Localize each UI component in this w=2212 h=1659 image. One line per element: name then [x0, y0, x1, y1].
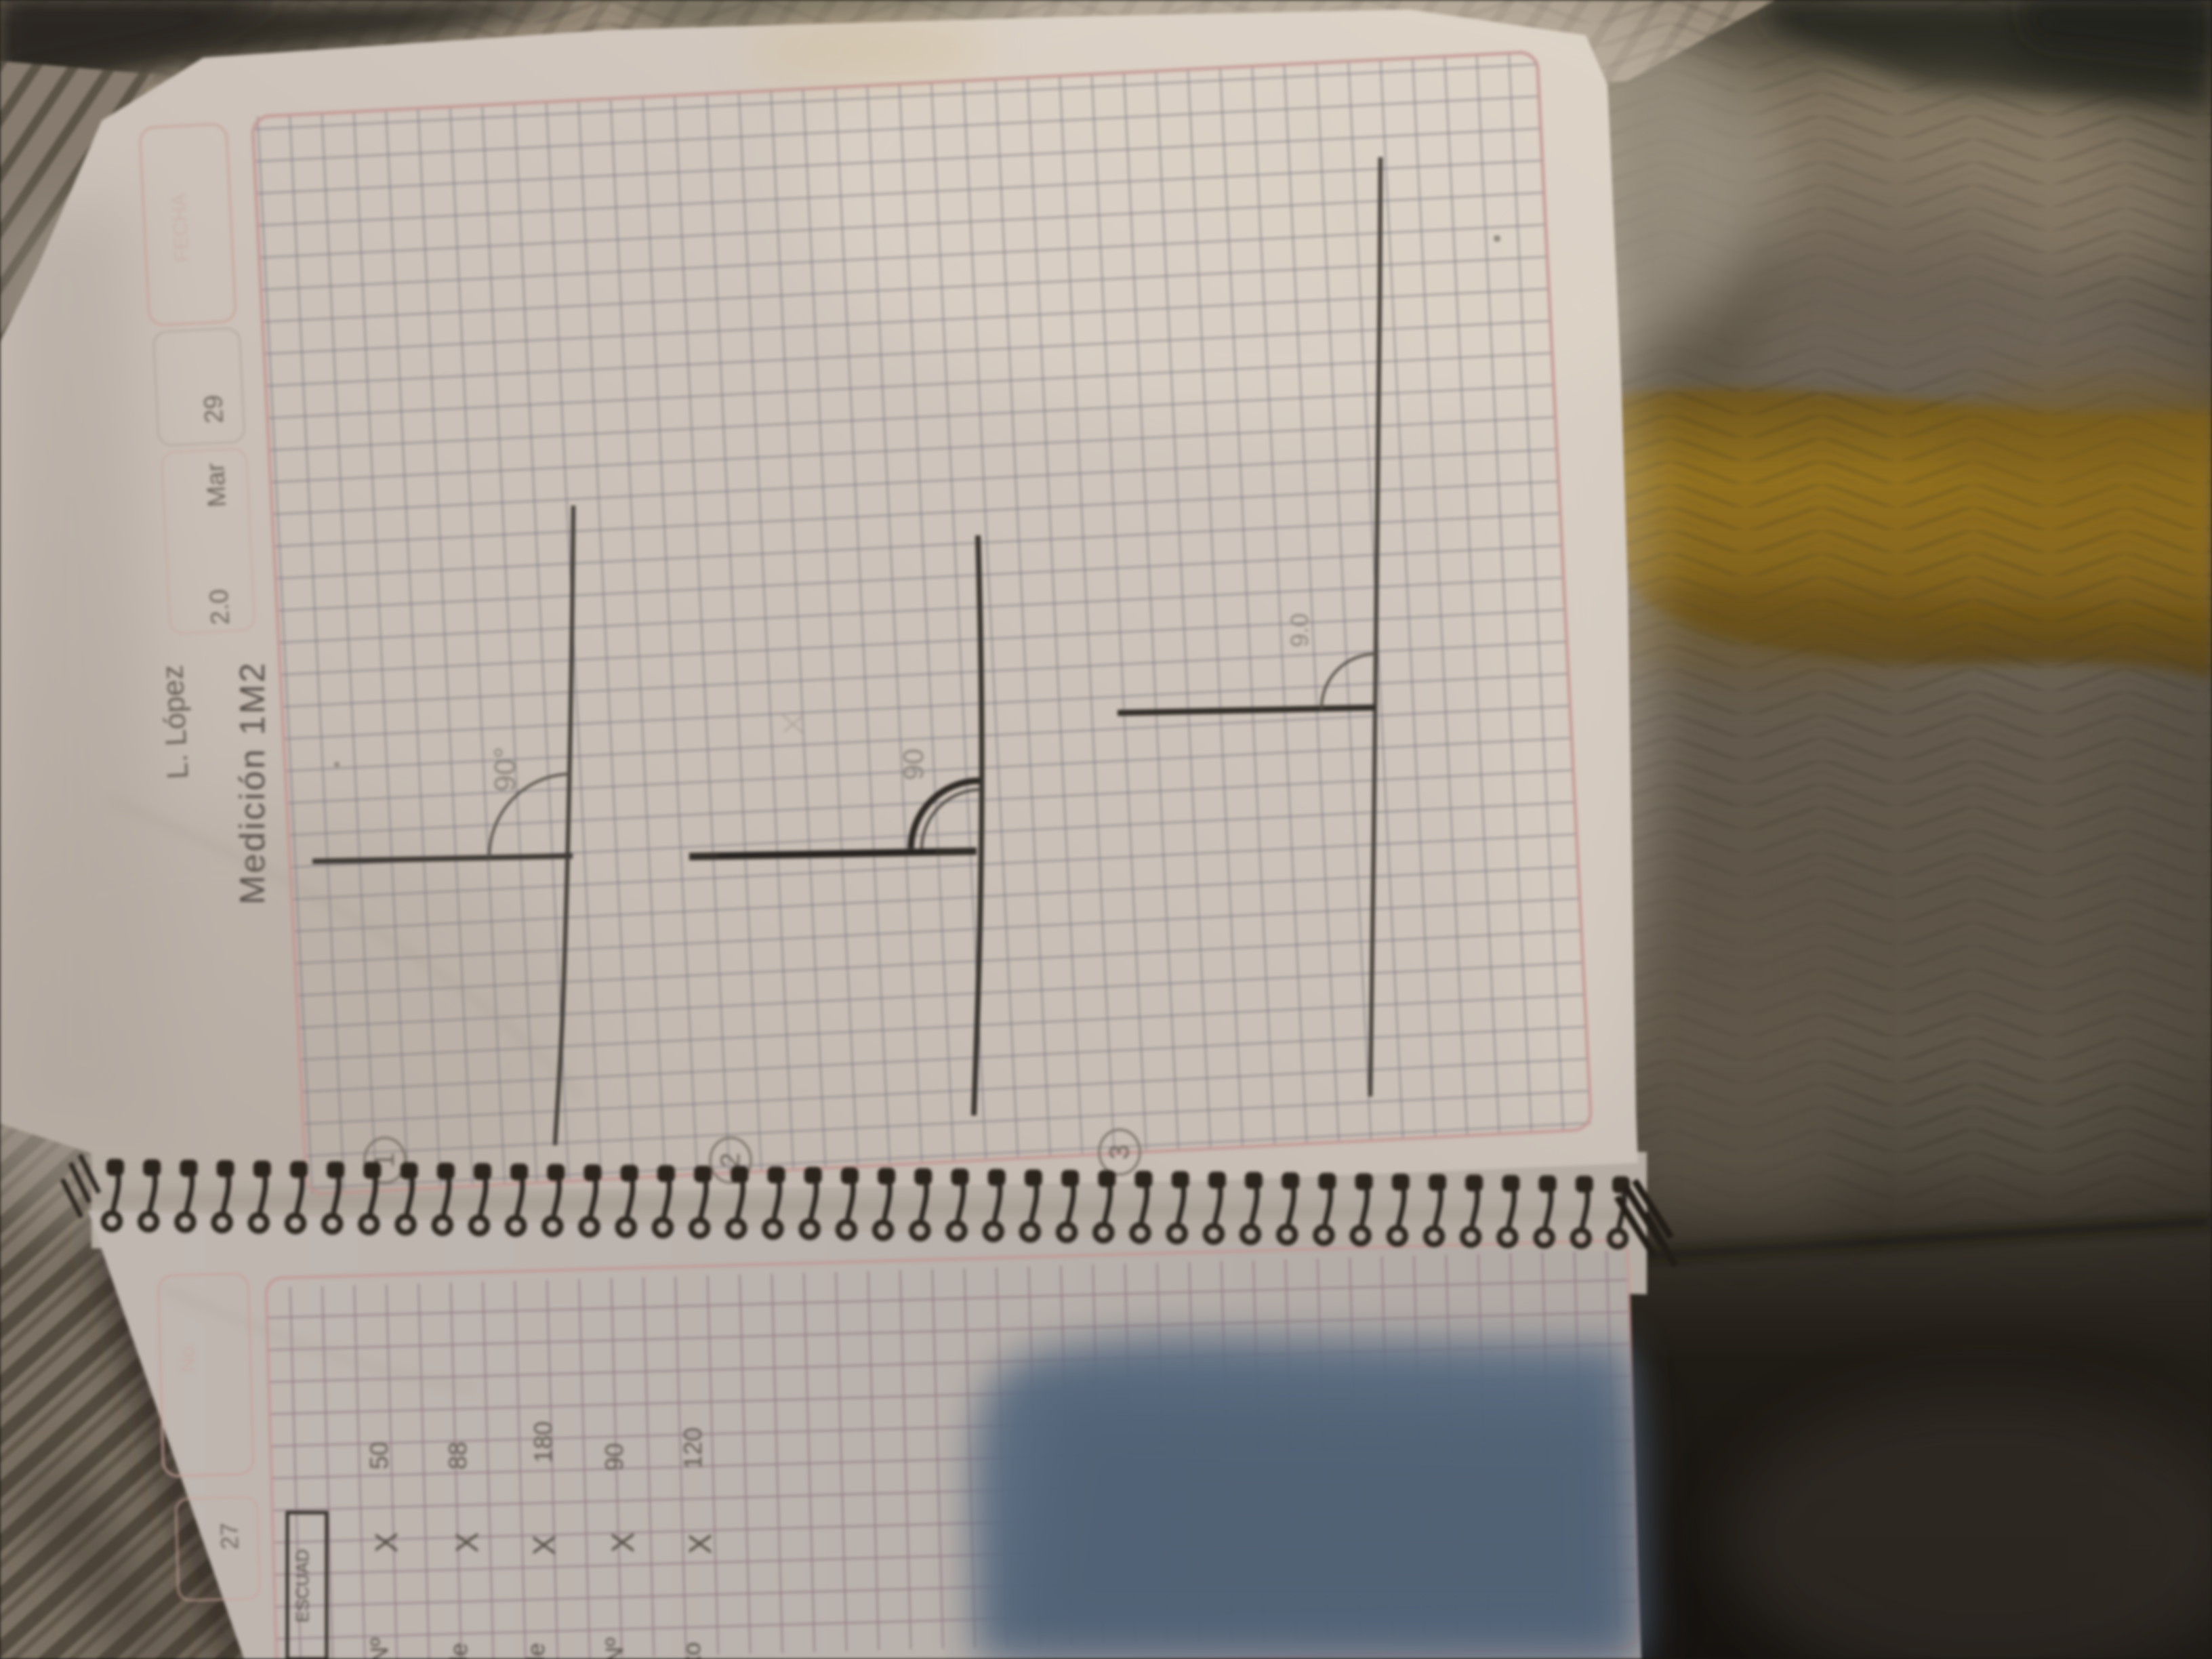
svg-text:9.0: 9.0 [1286, 613, 1313, 647]
svg-text:FECHA: FECHA [168, 192, 194, 262]
svg-text:3: 3 [1105, 1145, 1134, 1160]
svg-text:29: 29 [199, 394, 229, 424]
svg-text:No: No [176, 1346, 199, 1372]
svg-text:le: le [445, 1643, 472, 1659]
svg-text:2: 2 [716, 1153, 745, 1168]
svg-text:L. López: L. López [156, 664, 194, 780]
svg-text:Mar: Mar [201, 462, 232, 508]
svg-text:Nº: Nº [600, 1637, 628, 1659]
svg-text:X: X [605, 1532, 640, 1553]
svg-text:2.0: 2.0 [205, 588, 235, 626]
svg-text:90°: 90° [489, 747, 522, 792]
svg-text:Nº: Nº [365, 1637, 393, 1659]
svg-text:120: 120 [679, 1427, 707, 1469]
svg-text:ESCUAD: ESCUAD [292, 1549, 312, 1622]
svg-text:X: X [449, 1532, 485, 1553]
svg-text:88: 88 [444, 1441, 472, 1469]
svg-text:50: 50 [365, 1441, 393, 1469]
svg-text:180: 180 [529, 1421, 557, 1463]
svg-text:27: 27 [215, 1522, 243, 1550]
svg-text:le: le [522, 1643, 550, 1659]
svg-text:Medición 1M2: Medición 1M2 [233, 661, 272, 905]
svg-text:X: X [527, 1535, 562, 1556]
svg-text:to: to [678, 1642, 705, 1659]
svg-text:X: X [682, 1534, 718, 1555]
svg-text:X: X [369, 1532, 404, 1553]
svg-text:90: 90 [600, 1443, 628, 1471]
svg-text:90: 90 [897, 749, 929, 781]
